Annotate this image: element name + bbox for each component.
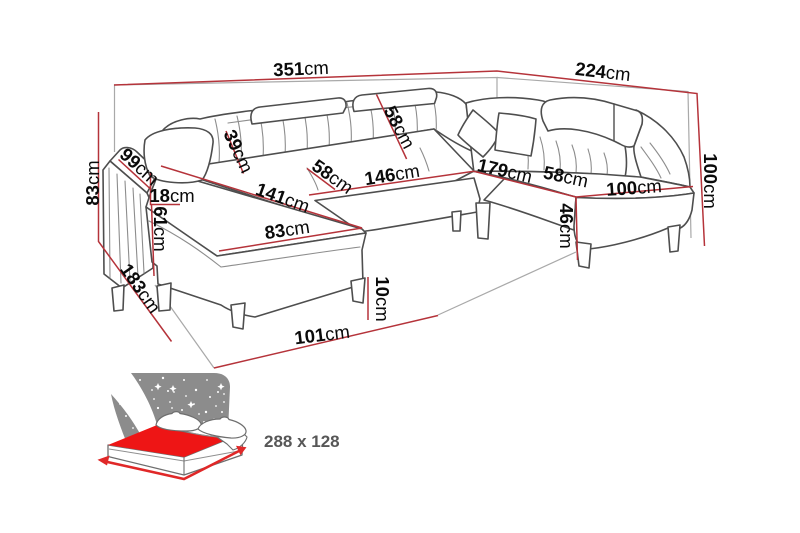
svg-text:100cm: 100cm [700, 153, 721, 209]
svg-text:288 x 128: 288 x 128 [264, 432, 340, 451]
svg-text:10cm: 10cm [372, 276, 393, 321]
svg-text:351cm: 351cm [273, 57, 329, 80]
svg-text:61cm: 61cm [150, 206, 171, 251]
svg-text:46cm: 46cm [556, 203, 577, 248]
svg-text:18cm: 18cm [149, 185, 194, 206]
svg-text:100cm: 100cm [606, 175, 663, 200]
svg-text:83cm: 83cm [82, 160, 103, 205]
